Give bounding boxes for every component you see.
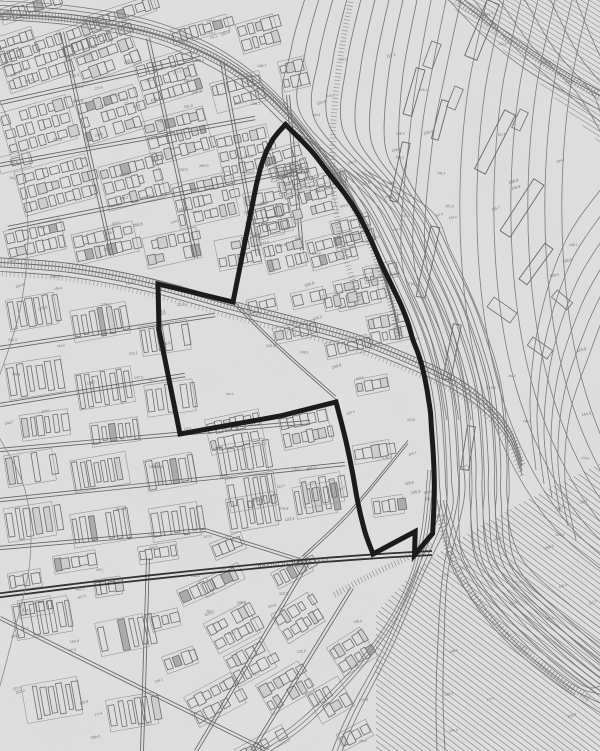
svg-text:168.6: 168.6: [12, 372, 21, 377]
svg-text:265.7: 265.7: [253, 498, 263, 503]
svg-text:246.5: 246.5: [191, 574, 200, 578]
svg-text:262.9: 262.9: [508, 374, 516, 378]
svg-text:115.2: 115.2: [402, 213, 410, 218]
svg-text:198.2: 198.2: [395, 155, 404, 160]
svg-text:220.3: 220.3: [226, 392, 234, 396]
svg-text:248.6: 248.6: [154, 465, 163, 469]
svg-text:198.5: 198.5: [195, 59, 204, 63]
svg-text:166.9: 166.9: [294, 563, 304, 568]
svg-text:213.6: 213.6: [407, 418, 415, 422]
svg-text:147.5: 147.5: [134, 376, 144, 380]
svg-text:180.9: 180.9: [523, 419, 531, 424]
svg-text:144.0: 144.0: [289, 320, 298, 324]
svg-text:149.1: 149.1: [327, 93, 335, 98]
svg-text:255.1: 255.1: [96, 568, 104, 572]
svg-text:254.9: 254.9: [312, 251, 321, 256]
svg-text:143.4: 143.4: [266, 344, 275, 348]
svg-text:146.7: 146.7: [257, 64, 267, 68]
svg-text:242.3: 242.3: [206, 609, 215, 614]
svg-text:240.9: 240.9: [51, 274, 61, 279]
svg-text:178.2: 178.2: [382, 455, 392, 460]
svg-text:140.7: 140.7: [148, 378, 156, 382]
svg-text:214.5: 214.5: [22, 608, 32, 612]
svg-text:158.9: 158.9: [36, 225, 45, 230]
svg-text:138.2: 138.2: [300, 350, 309, 355]
svg-text:248.1: 248.1: [569, 243, 577, 247]
svg-text:269.8: 269.8: [53, 137, 62, 142]
svg-text:255.8: 255.8: [359, 739, 367, 743]
svg-text:204.8: 204.8: [116, 506, 126, 512]
svg-text:225.9: 225.9: [73, 98, 83, 103]
svg-text:120.3: 120.3: [312, 113, 320, 117]
svg-text:112.9: 112.9: [279, 591, 289, 596]
svg-text:252.6: 252.6: [179, 167, 188, 172]
svg-text:136.4: 136.4: [396, 132, 405, 136]
svg-text:244.1: 244.1: [486, 385, 497, 390]
svg-text:161.0: 161.0: [565, 79, 573, 84]
svg-text:246.0: 246.0: [199, 164, 209, 168]
svg-text:179.0: 179.0: [581, 456, 590, 461]
svg-text:273.6: 273.6: [101, 303, 111, 307]
svg-text:191.7: 191.7: [144, 722, 152, 726]
svg-text:172.0: 172.0: [339, 57, 348, 62]
svg-text:194.0: 194.0: [57, 344, 65, 348]
svg-text:221.3: 221.3: [177, 303, 186, 307]
svg-text:144.1: 144.1: [555, 533, 565, 537]
svg-text:147.0: 147.0: [203, 535, 212, 539]
svg-text:181.6: 181.6: [445, 204, 454, 208]
svg-text:141.8: 141.8: [74, 84, 84, 89]
svg-text:276.8: 276.8: [279, 507, 289, 511]
svg-text:204.9: 204.9: [244, 155, 253, 159]
svg-text:254.8: 254.8: [385, 195, 393, 199]
svg-text:205.9: 205.9: [146, 194, 155, 198]
svg-text:255.4: 255.4: [111, 93, 120, 97]
svg-text:142.8: 142.8: [261, 240, 270, 245]
svg-text:264.9: 264.9: [260, 201, 268, 205]
svg-text:131.4: 131.4: [437, 171, 446, 175]
svg-text:228.5: 228.5: [388, 181, 396, 185]
svg-text:180.4: 180.4: [542, 60, 552, 65]
svg-text:177.2: 177.2: [520, 646, 528, 650]
svg-text:238.1: 238.1: [408, 281, 418, 287]
svg-text:156.6: 156.6: [179, 206, 189, 212]
svg-text:228.9: 228.9: [191, 210, 200, 214]
svg-text:191.7: 191.7: [9, 176, 18, 180]
svg-text:147.9: 147.9: [68, 648, 76, 652]
svg-text:135.0: 135.0: [292, 468, 301, 472]
svg-text:241.3: 241.3: [8, 338, 17, 342]
svg-text:173.5: 173.5: [100, 103, 108, 108]
svg-text:128.7: 128.7: [75, 587, 85, 591]
svg-text:261.8: 261.8: [117, 580, 125, 584]
svg-text:198.5: 198.5: [237, 600, 246, 605]
svg-text:245.5: 245.5: [512, 580, 521, 584]
svg-text:116.8: 116.8: [158, 119, 166, 123]
svg-text:138.1: 138.1: [251, 102, 260, 106]
svg-text:226.2: 226.2: [419, 88, 428, 92]
svg-text:153.0: 153.0: [498, 42, 507, 46]
svg-text:222.9: 222.9: [460, 565, 469, 570]
